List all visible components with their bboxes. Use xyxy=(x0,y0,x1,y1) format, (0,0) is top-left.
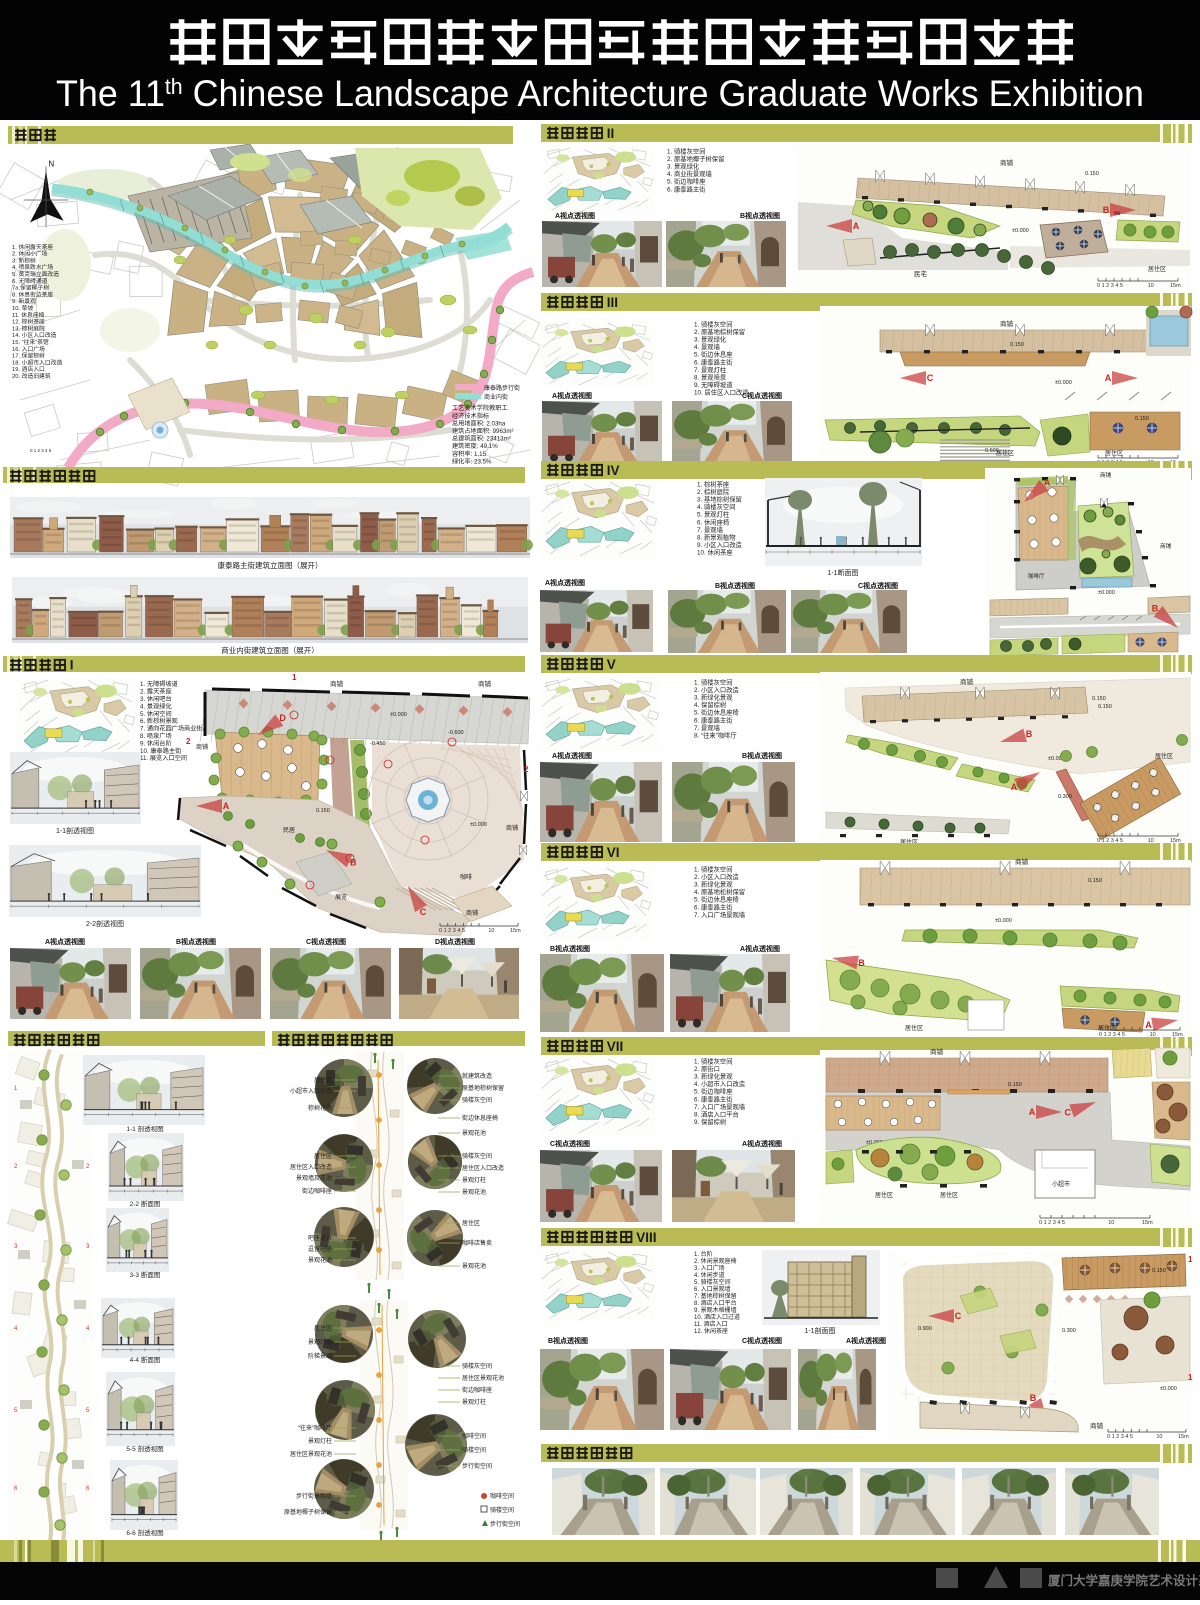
svg-text:6. 康泰路主街: 6. 康泰路主街 xyxy=(694,715,733,724)
svg-text:11. 展览入口空间: 11. 展览入口空间 xyxy=(140,754,187,762)
svg-text:居住区: 居住区 xyxy=(314,1152,332,1160)
svg-text:康泰路步行街: 康泰路步行街 xyxy=(484,384,520,392)
svg-text:商业内街建筑立面图（展开）: 商业内街建筑立面图（展开） xyxy=(221,645,319,655)
svg-text:B视点透视图: B视点透视图 xyxy=(742,751,782,760)
svg-text:康泰路主街建筑立面图（展开）: 康泰路主街建筑立面图（展开） xyxy=(218,560,323,570)
svg-text:6. 康泰路主街: 6. 康泰路主街 xyxy=(694,357,733,366)
svg-text:商业内街: 商业内街 xyxy=(484,393,508,401)
svg-text:6. 康泰路主街: 6. 康泰路主街 xyxy=(667,184,706,193)
svg-text:3. 基地棕树保留: 3. 基地棕树保留 xyxy=(697,495,742,504)
svg-text:15. “往来”茶馆: 15. “往来”茶馆 xyxy=(12,338,49,346)
svg-text:4. 景观绿化: 4. 景观绿化 xyxy=(140,702,172,710)
svg-text:原基地棕树保留: 原基地棕树保留 xyxy=(462,1084,504,1092)
svg-text:C视点透视图: C视点透视图 xyxy=(742,1336,782,1345)
svg-text:9. 无障碍坡道: 9. 无障碍坡道 xyxy=(694,380,733,389)
svg-text:C: C xyxy=(1065,1107,1072,1117)
svg-text:A视点透视图: A视点透视图 xyxy=(45,937,85,946)
svg-text:A视点透视图: A视点透视图 xyxy=(552,751,592,760)
svg-text:商铺: 商铺 xyxy=(1015,857,1029,866)
svg-text:2. 原基地椰子树保留: 2. 原基地椰子树保留 xyxy=(667,154,724,163)
svg-text:居住区: 居住区 xyxy=(462,1219,480,1227)
svg-text:1: 1 xyxy=(1188,1373,1193,1382)
svg-text:±0.000: ±0.000 xyxy=(1160,1386,1177,1392)
svg-text:C: C xyxy=(420,907,427,917)
svg-text:6. 入口景观墙: 6. 入口景观墙 xyxy=(694,1285,731,1293)
svg-text:0.150: 0.150 xyxy=(1010,342,1024,348)
svg-text:11. 酒店入口: 11. 酒店入口 xyxy=(694,1320,728,1328)
svg-text:绿化率: 23.5%: 绿化率: 23.5% xyxy=(452,457,492,465)
svg-text:B: B xyxy=(1152,604,1159,614)
svg-text:B: B xyxy=(1030,1393,1037,1403)
svg-text:A: A xyxy=(1029,1107,1036,1117)
svg-text:步行街空间: 步行街空间 xyxy=(490,1520,520,1528)
svg-text:0.150: 0.150 xyxy=(1098,704,1112,710)
svg-text:6. 休闲座椅: 6. 休闲座椅 xyxy=(697,517,730,526)
svg-text:居住区景观花池: 居住区景观花池 xyxy=(462,1374,504,1382)
svg-text:商铺: 商铺 xyxy=(1160,542,1172,550)
svg-text:7. 景观墙: 7. 景观墙 xyxy=(697,525,724,534)
svg-text:5. 街边休息座椅: 5. 街边休息座椅 xyxy=(694,895,739,904)
svg-text:9. 保留棕树: 9. 保留棕树 xyxy=(694,1117,727,1126)
svg-text:景观花池: 景观花池 xyxy=(462,1262,486,1270)
svg-text:±0.000: ±0.000 xyxy=(995,918,1012,924)
svg-text:10. 康泰路主街: 10. 康泰路主街 xyxy=(140,747,181,755)
svg-text:2. 露天茶座: 2. 露天茶座 xyxy=(140,688,172,696)
svg-text:13. 棕树庭院: 13. 棕树庭院 xyxy=(12,324,45,332)
svg-text:19. 酒店入口: 19. 酒店入口 xyxy=(12,365,45,373)
svg-text:±0.000: ±0.000 xyxy=(1098,590,1115,596)
svg-text:B视点透视图: B视点透视图 xyxy=(176,937,216,946)
svg-text:2. 原街口: 2. 原街口 xyxy=(694,1064,720,1073)
svg-text:C视点透视图: C视点透视图 xyxy=(742,391,782,400)
svg-text:0.150: 0.150 xyxy=(316,808,330,814)
svg-text:展览: 展览 xyxy=(335,893,347,901)
svg-text:5. 骑楼灰空间: 5. 骑楼灰空间 xyxy=(694,1278,731,1286)
svg-text:1. 骑楼灰空间: 1. 骑楼灰空间 xyxy=(667,146,706,155)
svg-text:9. 新景观: 9. 新景观 xyxy=(12,297,36,305)
svg-text:3. 入口广场: 3. 入口广场 xyxy=(694,1264,725,1272)
svg-text:2. 休闲景观座椅: 2. 休闲景观座椅 xyxy=(694,1257,737,1265)
svg-text:建筑占地面积: 9963m²: 建筑占地面积: 9963m² xyxy=(452,427,514,435)
svg-text:工艺美术学院教职工: 工艺美术学院教职工 xyxy=(452,404,508,412)
svg-text:16. 入口广场: 16. 入口广场 xyxy=(12,345,45,353)
svg-text:A: A xyxy=(1145,1020,1152,1030)
svg-text:商铺: 商铺 xyxy=(930,1047,944,1056)
svg-text:骑楼灰空间: 骑楼灰空间 xyxy=(462,1152,492,1160)
svg-text:咖啡店售卖: 咖啡店售卖 xyxy=(462,1239,492,1247)
svg-text:0 1 2 3 4 5: 0 1 2 3 4 5 xyxy=(439,928,465,934)
svg-text:5. 景观灯柱: 5. 景观灯柱 xyxy=(697,510,730,519)
svg-text:C: C xyxy=(955,1311,962,1321)
svg-text:阶梯景观: 阶梯景观 xyxy=(308,1352,332,1360)
svg-text:0.150: 0.150 xyxy=(1152,1268,1166,1274)
svg-text:0 1 2 3 4 5: 0 1 2 3 4 5 xyxy=(30,448,52,453)
svg-text:A: A xyxy=(1011,782,1018,792)
svg-text:骑楼空间: 骑楼空间 xyxy=(462,1446,486,1454)
svg-text:0.150: 0.150 xyxy=(1085,171,1099,177)
svg-text:1. 骑楼灰空间: 1. 骑楼灰空间 xyxy=(694,864,733,873)
svg-text:5. 黄克瑞立面改造: 5. 黄克瑞立面改造 xyxy=(12,270,59,278)
svg-text:5. 街边休息座椅: 5. 街边休息座椅 xyxy=(694,708,739,717)
svg-text:10: 10 xyxy=(488,928,494,934)
svg-text:6. 康泰路主街: 6. 康泰路主街 xyxy=(694,902,733,911)
svg-text:17. 保留棕树: 17. 保留棕树 xyxy=(12,352,45,360)
svg-text:3. 休闲吧台: 3. 休闲吧台 xyxy=(140,695,172,703)
svg-text:总建筑面积: 23413m²: 总建筑面积: 23413m² xyxy=(452,435,511,443)
svg-text:15m: 15m xyxy=(1178,1434,1189,1440)
svg-text:咖啡厅: 咖啡厅 xyxy=(1028,572,1045,580)
svg-text:±0.000: ±0.000 xyxy=(1055,380,1072,386)
svg-text:10. 酒店入口过道: 10. 酒店入口过道 xyxy=(694,1313,740,1321)
svg-text:街边休息座椅: 街边休息座椅 xyxy=(462,1114,498,1122)
svg-text:步行街景观墙: 步行街景观墙 xyxy=(296,1492,332,1500)
svg-text:A: A xyxy=(223,801,230,811)
svg-text:0.300: 0.300 xyxy=(1058,794,1072,800)
svg-text:VIII: VIII xyxy=(636,1230,656,1245)
svg-text:The 11th Chinese Landscape Arc: The 11th Chinese Landscape Architecture … xyxy=(56,73,1144,114)
svg-text:3. 新绿化景观: 3. 新绿化景观 xyxy=(694,880,733,889)
svg-text:8. 喷泉广场: 8. 喷泉广场 xyxy=(140,732,172,740)
svg-text:8. 景观喷泉: 8. 景观喷泉 xyxy=(694,373,727,382)
svg-text:2. 小区入口改造: 2. 小区入口改造 xyxy=(694,872,739,881)
svg-text:景观花池: 景观花池 xyxy=(308,1256,332,1264)
svg-text:棕树花池: 棕树花池 xyxy=(308,1104,332,1112)
svg-text:1. 休闲露天茶座: 1. 休闲露天茶座 xyxy=(12,243,53,251)
svg-text:居住区: 居住区 xyxy=(905,1024,923,1032)
svg-text:10: 10 xyxy=(1156,1434,1162,1440)
svg-text:居住区: 居住区 xyxy=(996,449,1014,457)
svg-text:0.150: 0.150 xyxy=(1008,1082,1022,1088)
svg-text:景观灯柱: 景观灯柱 xyxy=(462,1398,486,1406)
svg-text:4. 休闲步道: 4. 休闲步道 xyxy=(694,1271,725,1279)
svg-text:2. 休闲小广场: 2. 休闲小广场 xyxy=(12,250,48,258)
svg-text:步行街空间: 步行街空间 xyxy=(462,1462,492,1470)
svg-text:5. 街边咖啡座: 5. 街边咖啡座 xyxy=(667,177,706,186)
svg-text:1: 1 xyxy=(292,673,297,682)
svg-text:景观花池: 景观花池 xyxy=(462,1129,486,1137)
svg-text:A视点透视图: A视点透视图 xyxy=(545,578,585,587)
svg-text:景观花池: 景观花池 xyxy=(462,1188,486,1196)
svg-text:民居: 民居 xyxy=(283,827,295,834)
svg-text:B: B xyxy=(858,958,865,968)
svg-text:1-1断面图: 1-1断面图 xyxy=(827,568,858,577)
svg-text:民宅: 民宅 xyxy=(914,269,928,278)
svg-text:11. 休息座椅: 11. 休息座椅 xyxy=(12,311,45,319)
svg-text:3-3 断面图: 3-3 断面图 xyxy=(130,1270,161,1279)
svg-text:-0.600: -0.600 xyxy=(448,730,464,736)
svg-text:±0.000: ±0.000 xyxy=(470,822,487,828)
svg-text:20. 改造旧建筑: 20. 改造旧建筑 xyxy=(12,372,51,380)
svg-text:总用地面积: 2.03ha: 总用地面积: 2.03ha xyxy=(452,419,506,427)
svg-text:VI: VI xyxy=(607,845,620,860)
svg-text:7. 入口广场景观墙: 7. 入口广场景观墙 xyxy=(694,1102,746,1111)
svg-text:0.150: 0.150 xyxy=(1092,696,1106,702)
svg-text:A: A xyxy=(1105,373,1112,383)
svg-text:“往来”咖啡厅: “往来”咖啡厅 xyxy=(298,1424,332,1432)
svg-text:8. 新景观植物: 8. 新景观植物 xyxy=(697,533,736,542)
svg-text:咖啡空间: 咖啡空间 xyxy=(462,1432,486,1440)
svg-text:4. 骑楼灰空间: 4. 骑楼灰空间 xyxy=(697,502,736,511)
svg-text:0.150: 0.150 xyxy=(1135,416,1149,422)
svg-text:±0.000: ±0.000 xyxy=(1012,228,1029,234)
svg-text:A视点透视图: A视点透视图 xyxy=(740,944,780,953)
svg-text:I: I xyxy=(70,658,74,673)
svg-text:4. 商业街景观墙: 4. 商业街景观墙 xyxy=(667,169,712,178)
svg-text:居住区入口改造: 居住区入口改造 xyxy=(462,1164,504,1172)
svg-text:A视点透视图: A视点透视图 xyxy=(552,391,592,400)
svg-text:±0.000: ±0.000 xyxy=(390,712,407,718)
svg-text:居住区景观花池: 居住区景观花池 xyxy=(290,1450,332,1458)
svg-text:D: D xyxy=(279,713,286,723)
svg-text:9. 景观木格栅墙: 9. 景观木格栅墙 xyxy=(694,1306,737,1314)
svg-text:A视点透视图: A视点透视图 xyxy=(742,1139,782,1148)
svg-text:4. 保留棕树: 4. 保留棕树 xyxy=(694,700,727,709)
svg-text:9. 休闲台阶: 9. 休闲台阶 xyxy=(140,739,172,747)
svg-text:A视点透视图: A视点透视图 xyxy=(555,211,595,220)
svg-text:IV: IV xyxy=(607,463,620,478)
svg-text:商铺: 商铺 xyxy=(1090,1421,1104,1430)
svg-text:C视点透视图: C视点透视图 xyxy=(858,581,898,590)
svg-text:商铺: 商铺 xyxy=(1000,319,1014,328)
svg-text:12. 休闲茶座: 12. 休闲茶座 xyxy=(694,1327,728,1335)
svg-text:5. 街边咖啡座: 5. 街边咖啡座 xyxy=(694,1087,733,1096)
svg-text:1-1剖面图: 1-1剖面图 xyxy=(804,1326,835,1335)
svg-text:0 1 2 3 4 5: 0 1 2 3 4 5 xyxy=(1107,1434,1133,1440)
svg-text:居住区: 居住区 xyxy=(940,1191,958,1199)
svg-text:商铺: 商铺 xyxy=(466,909,478,917)
svg-text:15m: 15m xyxy=(1170,283,1181,289)
svg-text:商铺: 商铺 xyxy=(506,824,518,832)
svg-text:建筑密度: 49.1%: 建筑密度: 49.1% xyxy=(452,442,498,450)
svg-text:B: B xyxy=(1026,729,1033,739)
svg-text:8. 休息街边茶座: 8. 休息街边茶座 xyxy=(12,290,53,298)
svg-text:1: 1 xyxy=(1188,1255,1193,1264)
svg-text:商铺: 商铺 xyxy=(478,679,492,688)
svg-text:0.900: 0.900 xyxy=(918,1326,932,1332)
svg-text:吧座花台: 吧座花台 xyxy=(308,1234,332,1242)
svg-text:14. 小区入口改造: 14. 小区入口改造 xyxy=(12,331,57,339)
svg-text:就建筑改造: 就建筑改造 xyxy=(462,1072,492,1080)
svg-text:4. 景观墙: 4. 景观墙 xyxy=(694,342,721,351)
svg-text:1. 棕树茶座: 1. 棕树茶座 xyxy=(697,479,729,488)
svg-text:10: 10 xyxy=(1148,283,1154,289)
svg-text:8. 酒店入口平台: 8. 酒店入口平台 xyxy=(694,1110,739,1119)
svg-text:6. 康泰路主街: 6. 康泰路主街 xyxy=(694,1094,733,1103)
svg-text:景观灯柱: 景观灯柱 xyxy=(308,1437,332,1445)
svg-text:商铺: 商铺 xyxy=(330,679,344,688)
svg-text:商铺: 商铺 xyxy=(1000,158,1014,167)
svg-text:居住区: 居住区 xyxy=(1148,265,1166,273)
svg-text:2-2 断面图: 2-2 断面图 xyxy=(130,1199,161,1208)
svg-text:B: B xyxy=(1103,205,1110,215)
svg-text:居住区: 居住区 xyxy=(314,1076,332,1084)
svg-text:3. 景观绿化: 3. 景观绿化 xyxy=(694,335,727,344)
svg-text:10: 10 xyxy=(1108,1220,1114,1226)
svg-text:4. 小超市入口改造: 4. 小超市入口改造 xyxy=(694,1079,746,1088)
svg-text:B视点透视图: B视点透视图 xyxy=(548,1336,588,1345)
svg-text:B视点透视图: B视点透视图 xyxy=(740,211,780,220)
svg-text:景观灯墙: 景观灯墙 xyxy=(308,1338,332,1346)
svg-text:3. 景观绿化: 3. 景观绿化 xyxy=(667,162,700,171)
svg-text:4-4 断面图: 4-4 断面图 xyxy=(130,1355,161,1364)
svg-text:II: II xyxy=(607,126,615,141)
svg-text:居住区: 居住区 xyxy=(1098,1024,1116,1032)
svg-text:10. 休闲茶座: 10. 休闲茶座 xyxy=(697,548,733,557)
svg-text:15m: 15m xyxy=(510,928,521,934)
svg-text:咖啡: 咖啡 xyxy=(460,873,472,881)
svg-text:C: C xyxy=(927,373,934,383)
svg-text:逗留吧座: 逗留吧座 xyxy=(308,1245,332,1253)
svg-text:经济技术指标: 经济技术指标 xyxy=(452,412,489,420)
svg-text:N: N xyxy=(48,159,54,168)
svg-text:3. 新绿化景观: 3. 新绿化景观 xyxy=(694,693,733,702)
svg-text:6. 无障碍通道: 6. 无障碍通道 xyxy=(12,277,48,285)
svg-text:7. 通向花园广场商业街A: 7. 通向花园广场商业街A xyxy=(140,725,208,733)
svg-text:2. 小区入口改造: 2. 小区入口改造 xyxy=(694,685,739,694)
svg-text:V: V xyxy=(607,657,616,672)
svg-text:3. 新绿化景观: 3. 新绿化景观 xyxy=(694,1072,733,1081)
svg-text:D视点透视图: D视点透视图 xyxy=(435,937,475,946)
svg-text:骑楼灰空间: 骑楼灰空间 xyxy=(462,1096,492,1104)
svg-text:居住区: 居住区 xyxy=(1155,752,1173,760)
svg-text:6. 新棕树景观: 6. 新棕树景观 xyxy=(140,717,178,725)
svg-text:2. 棕树庭院: 2. 棕树庭院 xyxy=(697,487,730,496)
svg-text:4. 原基地松树保留: 4. 原基地松树保留 xyxy=(694,887,745,896)
svg-text:5. 休闲空间: 5. 休闲空间 xyxy=(140,710,172,718)
svg-text:1. 骑楼灰空间: 1. 骑楼灰空间 xyxy=(694,319,733,328)
svg-text:1-1 剖透视图: 1-1 剖透视图 xyxy=(126,1124,163,1133)
svg-text:1. 台阶: 1. 台阶 xyxy=(694,1250,713,1258)
svg-text:7a.保留椰子树: 7a.保留椰子树 xyxy=(12,284,49,292)
svg-text:0 1 2 3 4 5: 0 1 2 3 4 5 xyxy=(1039,1220,1065,1226)
svg-text:B视点透视图: B视点透视图 xyxy=(715,581,755,590)
svg-text:居住区: 居住区 xyxy=(314,1324,332,1332)
svg-text:A: A xyxy=(853,221,860,231)
svg-text:A视点透视图: A视点透视图 xyxy=(846,1336,886,1345)
svg-text:8. “往来”咖啡厅: 8. “往来”咖啡厅 xyxy=(694,731,737,740)
svg-text:2-2剖透视图: 2-2剖透视图 xyxy=(86,919,124,928)
svg-text:骑楼空间: 骑楼空间 xyxy=(490,1506,514,1514)
svg-text:6-6 剖透视图: 6-6 剖透视图 xyxy=(126,1528,163,1537)
svg-text:厦门大学嘉庚学院艺术设计系: 厦门大学嘉庚学院艺术设计系 xyxy=(1048,1573,1200,1588)
svg-text:3. 新棕树: 3. 新棕树 xyxy=(12,256,36,264)
svg-text:1. 骑楼灰空间: 1. 骑楼灰空间 xyxy=(694,1056,733,1065)
svg-text:骑楼灰空间: 骑楼灰空间 xyxy=(462,1362,492,1370)
svg-text:C视点透视图: C视点透视图 xyxy=(306,937,346,946)
svg-text:10. 草坡: 10. 草坡 xyxy=(12,304,33,312)
svg-text:A: A xyxy=(1044,478,1051,488)
svg-text:景观灯柱: 景观灯柱 xyxy=(462,1176,486,1184)
svg-text:15m: 15m xyxy=(1142,1220,1153,1226)
svg-text:III: III xyxy=(607,295,618,310)
svg-text:商铺: 商铺 xyxy=(1100,471,1112,479)
svg-text:咖啡空间: 咖啡空间 xyxy=(490,1492,514,1500)
svg-text:VII: VII xyxy=(607,1039,624,1054)
svg-text:7. 入口广场景观墙: 7. 入口广场景观墙 xyxy=(694,910,746,919)
svg-text:7. 基地棕树保留: 7. 基地棕树保留 xyxy=(694,1292,737,1300)
svg-text:1. 无障碍坡道: 1. 无障碍坡道 xyxy=(140,680,178,688)
svg-text:容积率: 1.15: 容积率: 1.15 xyxy=(452,450,487,458)
svg-text:小超市入口改造: 小超市入口改造 xyxy=(290,1087,332,1095)
svg-text:2. 原基地棕树保留: 2. 原基地棕树保留 xyxy=(694,327,745,336)
svg-text:2: 2 xyxy=(186,737,191,746)
svg-text:小超市: 小超市 xyxy=(1052,1180,1070,1188)
svg-text:9. 小区入口改造: 9. 小区入口改造 xyxy=(697,540,742,549)
svg-text:7. 景观墙: 7. 景观墙 xyxy=(694,723,721,732)
svg-text:0.150: 0.150 xyxy=(1088,878,1102,884)
svg-text:居住区: 居住区 xyxy=(875,1191,893,1199)
svg-text:5-5 剖透视图: 5-5 剖透视图 xyxy=(126,1444,163,1453)
svg-text:2: 2 xyxy=(524,765,529,774)
svg-text:12. 棕树茶座: 12. 棕树茶座 xyxy=(12,318,45,326)
svg-text:街边咖啡座: 街边咖啡座 xyxy=(462,1386,492,1394)
svg-text:景观墙及花池: 景观墙及花池 xyxy=(296,1174,332,1182)
svg-text:原基地椰子树保留: 原基地椰子树保留 xyxy=(284,1508,332,1516)
svg-text:5. 街边休息座: 5. 街边休息座 xyxy=(694,350,733,359)
svg-text:居住区入口改造: 居住区入口改造 xyxy=(290,1163,332,1171)
svg-text:B视点透视图: B视点透视图 xyxy=(550,944,590,953)
svg-text:商铺: 商铺 xyxy=(196,743,208,751)
svg-text:7. 景观灯柱: 7. 景观灯柱 xyxy=(694,365,727,374)
svg-text:C视点透视图: C视点透视图 xyxy=(550,1139,590,1148)
svg-text:-0.450: -0.450 xyxy=(370,741,386,747)
svg-text:18. 小超市入口改造: 18. 小超市入口改造 xyxy=(12,358,62,366)
svg-text:4. 喷泉跌水广场: 4. 喷泉跌水广场 xyxy=(12,263,53,271)
svg-text:0 1 2 3 4 5: 0 1 2 3 4 5 xyxy=(1097,283,1123,289)
svg-text:街边咖啡座: 街边咖啡座 xyxy=(302,1187,332,1195)
svg-text:8. 酒店入口平台: 8. 酒店入口平台 xyxy=(694,1299,737,1307)
svg-text:1-1剖透视图: 1-1剖透视图 xyxy=(56,826,94,835)
svg-text:1. 骑楼灰空间: 1. 骑楼灰空间 xyxy=(694,677,733,686)
svg-text:0.300: 0.300 xyxy=(1062,1328,1076,1334)
svg-text:商铺: 商铺 xyxy=(960,677,974,686)
